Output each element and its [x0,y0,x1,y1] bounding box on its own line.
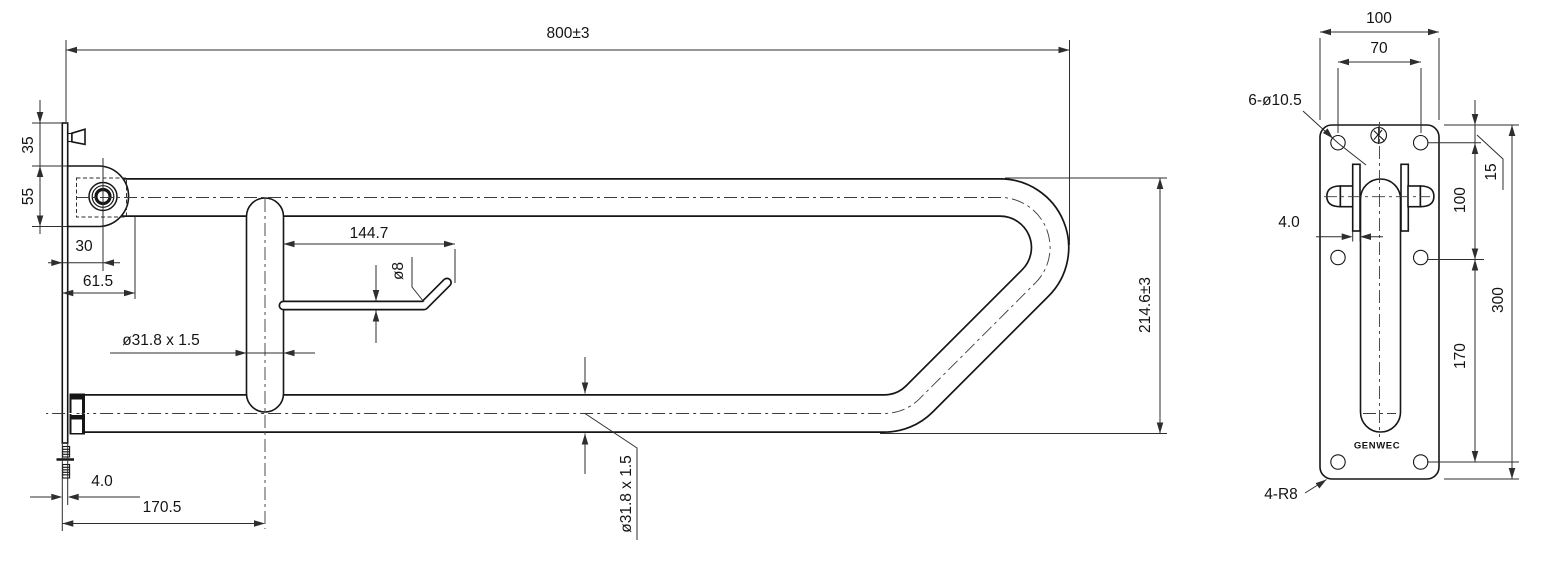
brand-logo: GENWEC [1354,441,1400,452]
hinge-plate-left [1353,164,1360,231]
dim-hinge-thickness: 4.0 [1278,214,1300,231]
dimension-labels: 800±3 35 55 30 61.5 ø31.8 x 1.5 144.7 ø8… [20,10,1507,533]
main-view [57,123,1051,478]
dim-plate-height-lines [1444,125,1519,479]
arrowhead [37,216,44,227]
dim-144-7-lines [284,244,456,283]
dim-70: 70 [1370,40,1388,57]
grab-bar-tube-outline [81,197,1050,413]
dim-overall-height: 214.6±3 [1137,277,1154,333]
arrowhead [1157,423,1164,434]
arrowhead [51,259,62,266]
arrowhead [582,434,589,445]
tube-centerline [46,197,1050,413]
arrowhead [68,494,79,501]
arrowhead [1509,468,1516,479]
dim-55: 55 [20,188,37,205]
grab-bar-technical-drawing: GENWEC [0,0,1547,562]
dim-30: 30 [75,238,93,255]
dim-tube-spec-vertical: ø31.8 x 1.5 [618,455,635,533]
arrowhead [66,47,77,54]
arrowhead [444,241,455,248]
arrowhead [1428,29,1439,36]
arrowhead [1472,451,1479,462]
arrowhead [1509,125,1516,136]
arrowhead [284,350,295,357]
arrowhead [1410,59,1421,66]
arrowhead [373,311,380,322]
dim-corner-radius: 4-R8 [1264,486,1298,503]
dim-plate-height: 300 [1490,287,1507,313]
arrowhead [37,112,44,123]
dim-overall-length: 800±3 [547,25,590,42]
arrowhead [124,290,135,297]
arrowhead [1472,260,1479,271]
arrowhead [1472,249,1479,260]
dim-rod-diameter: ø8 [390,262,407,280]
technical-drawing-page: GENWEC [0,0,1547,562]
dim-170-5: 170.5 [143,499,182,516]
dim-170: 170 [1452,343,1469,369]
arrowhead [1472,114,1479,125]
arrowhead [62,520,73,527]
arrowhead [1338,59,1349,66]
anchor-stud [57,447,75,479]
dim-plate-thickness: 4.0 [91,473,113,490]
arrowhead [1472,143,1479,154]
arrowhead [373,290,380,301]
arrowhead [103,259,114,266]
dim-61-5: 61.5 [83,273,113,290]
arrowhead [582,383,589,394]
arrowhead [37,166,44,177]
arrowhead [1157,178,1164,189]
dim-100-vertical: 100 [1452,187,1469,213]
dim-15: 15 [1483,163,1500,180]
tube-profile-slot [1361,179,1401,432]
grab-bar-tube-fill [81,197,1050,413]
paper-holder-rod-outline [284,283,448,306]
arrowhead [284,241,295,248]
arrowhead [51,494,62,501]
wall-plate-edge [62,123,67,443]
dim-tube-spec: ø31.8 x 1.5 [122,332,200,349]
arrowhead [236,350,247,357]
arrowhead [1059,47,1070,54]
flange-bolt-slot-upper [72,400,83,416]
arrowhead [254,520,265,527]
dim-plate-width: 100 [1366,10,1392,27]
dim-144-7: 144.7 [350,225,389,242]
dim-right-column-lines [1427,100,1519,462]
arrowhead [1320,29,1331,36]
flange-bolt-slot-lower [72,420,83,434]
dim-holes-spec: 6-ø10.5 [1248,92,1301,109]
dim-plate-thickness-lines [30,443,140,531]
release-knob-cone [72,129,85,144]
dim-35: 35 [20,136,37,153]
